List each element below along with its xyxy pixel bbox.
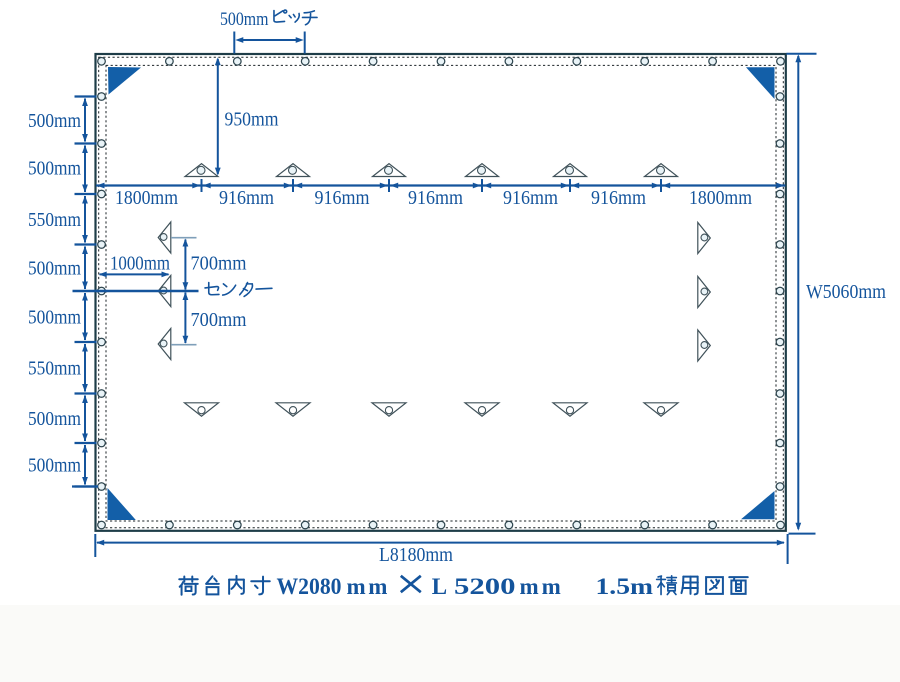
svg-text:W2080: W2080 (277, 574, 342, 599)
svg-text:500mm: 500mm (28, 158, 81, 179)
svg-text:m: m (542, 574, 561, 599)
svg-text:L: L (432, 574, 447, 599)
svg-text:1000mm: 1000mm (110, 253, 170, 275)
svg-text:m: m (368, 574, 387, 599)
svg-text:916mm: 916mm (315, 187, 370, 209)
svg-text:916mm: 916mm (408, 187, 463, 209)
svg-text:5200: 5200 (454, 574, 516, 599)
svg-text:700mm: 700mm (191, 253, 247, 275)
svg-text:916mm: 916mm (219, 187, 274, 209)
svg-text:550mm: 550mm (28, 358, 81, 379)
svg-text:L8180mm: L8180mm (379, 544, 453, 566)
svg-text:1800mm: 1800mm (689, 187, 752, 209)
svg-text:500mm: 500mm (28, 111, 81, 132)
svg-text:1800mm: 1800mm (115, 187, 178, 209)
svg-text:916mm: 916mm (503, 187, 558, 209)
svg-text:500mm: 500mm (28, 409, 81, 430)
svg-text:500mm: 500mm (28, 455, 81, 476)
svg-text:1.5m: 1.5m (596, 574, 654, 599)
svg-text:950mm: 950mm (225, 109, 279, 131)
svg-text:550mm: 550mm (28, 210, 81, 231)
svg-text:500mm: 500mm (220, 9, 269, 30)
svg-text:700mm: 700mm (191, 309, 247, 331)
svg-text:916mm: 916mm (591, 187, 646, 209)
svg-text:500mm: 500mm (28, 307, 81, 328)
svg-text:W5060mm: W5060mm (806, 281, 886, 303)
svg-text:m: m (520, 574, 539, 599)
svg-text:m: m (347, 574, 366, 599)
svg-text:500mm: 500mm (28, 258, 81, 279)
